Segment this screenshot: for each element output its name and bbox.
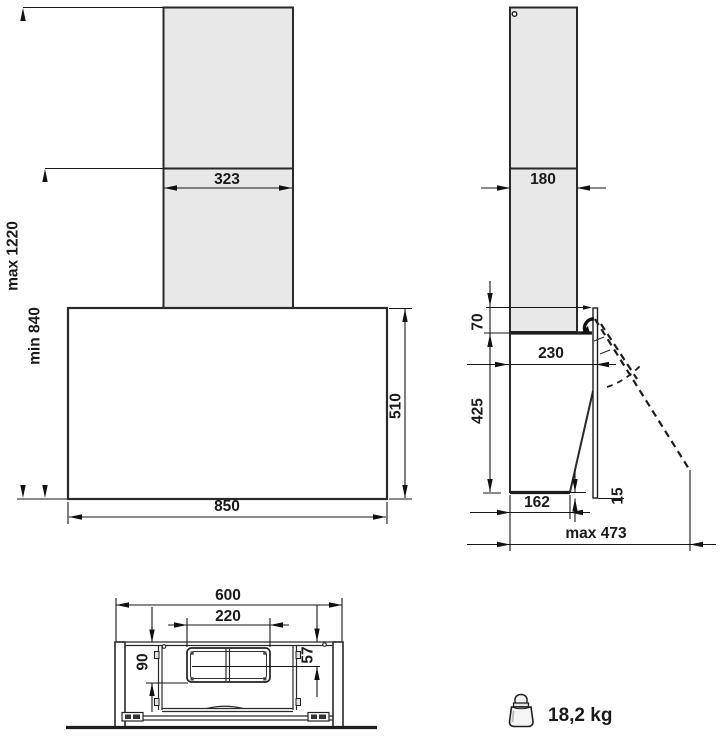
dim-panel-overhang: 15 <box>610 487 627 505</box>
dim-bottom-depth: 162 <box>524 494 550 511</box>
screw-hole-icon <box>512 12 517 17</box>
dim-hood-width: 850 <box>214 498 240 515</box>
side-view: 180 <box>467 8 716 552</box>
dim-chimney-overlap: 70 <box>470 313 487 330</box>
weight-info: 18,2 kg <box>509 695 612 727</box>
front-chimney <box>164 8 294 309</box>
dim-side-hood-height: 425 <box>470 398 487 424</box>
hood-dimension-drawing: max 1220 min 840 323 510 850 <box>0 0 722 738</box>
side-open-panel-dashed <box>594 319 689 469</box>
front-view: max 1220 min 840 323 510 850 <box>5 8 413 525</box>
dim-chimney-depth: 180 <box>530 171 556 188</box>
dim-min-install-height: min 840 <box>27 307 44 365</box>
bracket-icon <box>308 713 329 722</box>
dim-side-hood-depth: 230 <box>538 345 564 362</box>
bottom-view: 600 220 90 57 <box>66 587 377 728</box>
dim-chimney-width: 323 <box>214 171 240 188</box>
dim-filter-depth: 90 <box>135 653 152 670</box>
technical-drawing-page: max 1220 min 840 323 510 850 <box>0 0 722 738</box>
filter-depth-dimension <box>146 607 188 712</box>
dim-max-install-height: max 1220 <box>5 221 22 291</box>
weight-icon <box>509 695 533 727</box>
front-hood-body <box>68 308 387 499</box>
dim-bottom-width: 600 <box>215 587 241 604</box>
dim-hood-height: 510 <box>388 393 405 419</box>
side-chimney <box>510 8 577 333</box>
bracket-icon <box>122 713 143 722</box>
dim-offset: 57 <box>300 646 317 663</box>
dim-max-open-depth: max 473 <box>565 525 627 542</box>
dim-filter-width: 220 <box>215 608 241 625</box>
side-glass-panel <box>593 308 598 498</box>
weight-label: 18,2 kg <box>548 705 612 726</box>
